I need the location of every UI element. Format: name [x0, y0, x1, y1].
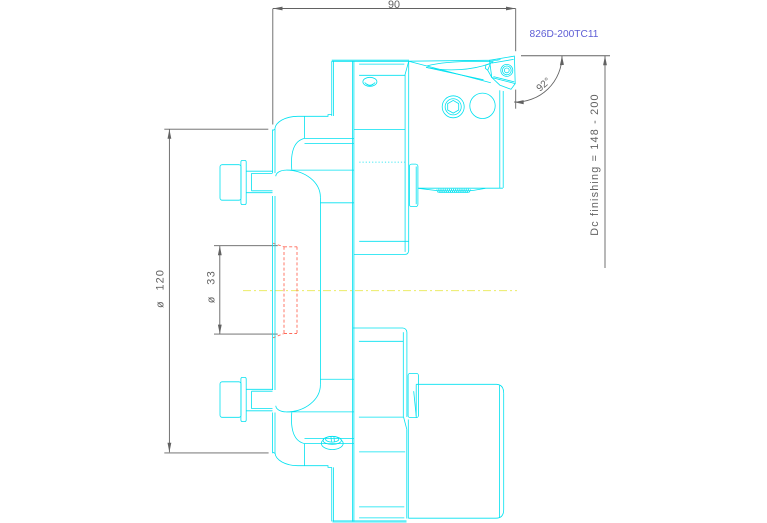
svg-text:ø 120: ø 120 [154, 269, 166, 308]
svg-text:826D-200TC11: 826D-200TC11 [530, 29, 599, 40]
svg-text:ø 33: ø 33 [205, 270, 217, 304]
svg-text:90: 90 [388, 0, 400, 11]
svg-text:Dc finishing = 148 - 200: Dc finishing = 148 - 200 [589, 93, 601, 236]
